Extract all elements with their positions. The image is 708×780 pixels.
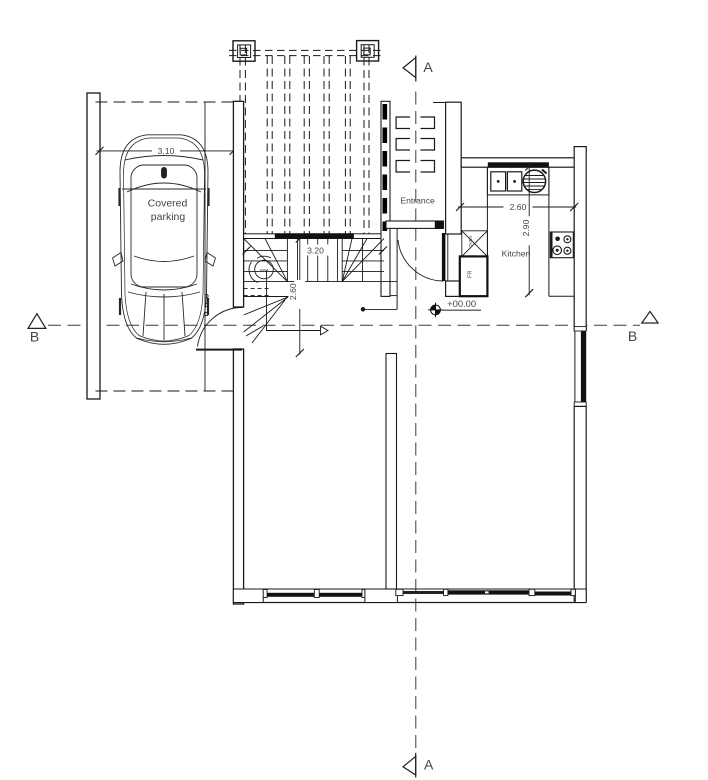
svg-text:B: B bbox=[30, 329, 39, 345]
svg-text:2.90: 2.90 bbox=[521, 219, 531, 236]
svg-text:2.60: 2.60 bbox=[288, 283, 298, 300]
svg-text:FR: FR bbox=[468, 271, 474, 278]
svg-text:parking: parking bbox=[151, 211, 186, 223]
svg-text:Kitchen: Kitchen bbox=[502, 249, 531, 259]
svg-text:A: A bbox=[423, 59, 433, 75]
svg-text:3.20: 3.20 bbox=[307, 246, 324, 256]
svg-text:3.10: 3.10 bbox=[158, 146, 175, 156]
svg-text:Entrance: Entrance bbox=[400, 195, 435, 205]
svg-text:Covered: Covered bbox=[148, 198, 188, 210]
svg-text:2.60: 2.60 bbox=[510, 202, 527, 212]
svg-text:+00.00: +00.00 bbox=[447, 298, 476, 309]
svg-text:WM: WM bbox=[260, 268, 268, 273]
svg-text:A: A bbox=[424, 757, 434, 773]
svg-text:B: B bbox=[628, 328, 637, 344]
svg-text:OVEN: OVEN bbox=[468, 236, 473, 248]
